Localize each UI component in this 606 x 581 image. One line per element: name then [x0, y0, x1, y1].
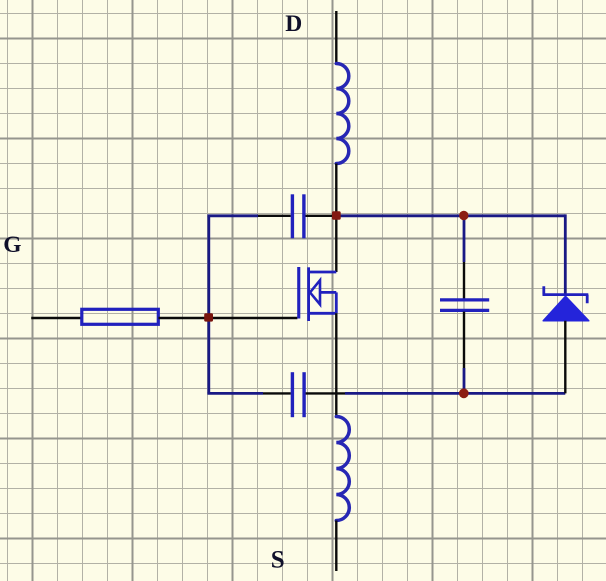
svg-text:D: D — [285, 11, 302, 37]
svg-text:G: G — [3, 232, 21, 258]
svg-text:S: S — [271, 546, 285, 573]
